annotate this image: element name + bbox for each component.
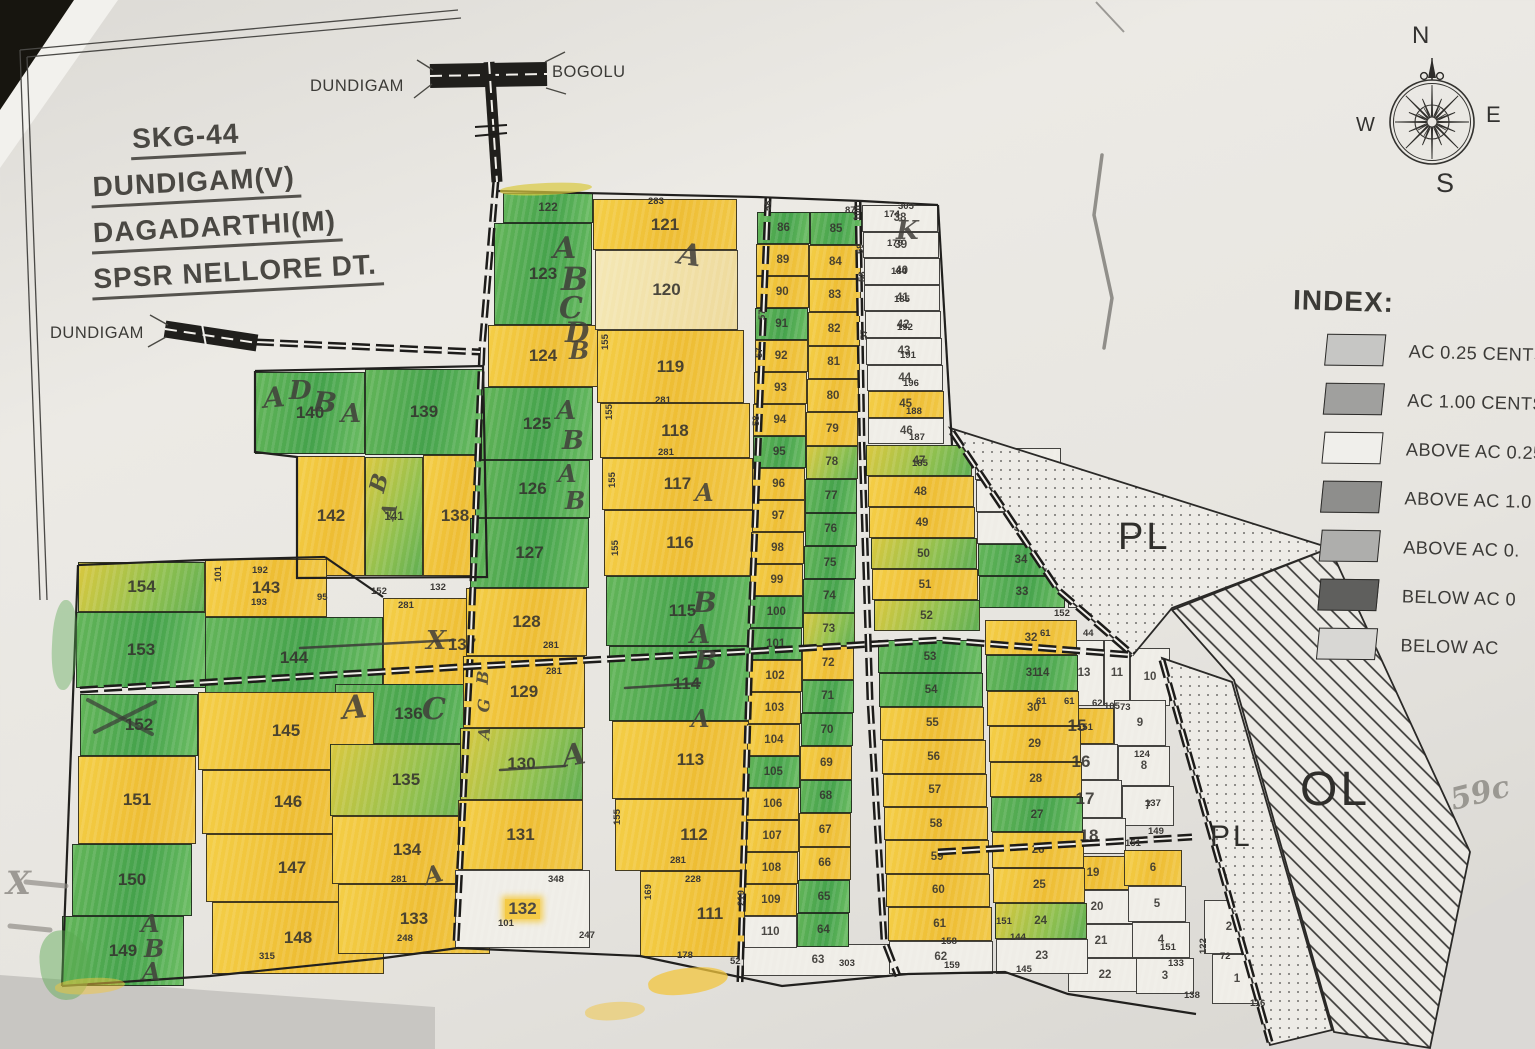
- parcel-42: 42: [865, 311, 941, 338]
- parcel-123: 123: [494, 223, 592, 325]
- parcel-number: 116: [666, 533, 693, 553]
- parcel-number: 92: [775, 350, 788, 362]
- parcel-number: 46: [900, 425, 913, 437]
- parcel-107: 107: [746, 820, 799, 852]
- parcel-number: 134: [393, 840, 421, 860]
- legend-label: AC 1.00 CENTS: [1407, 390, 1535, 415]
- parcel-number: 53: [924, 651, 937, 663]
- parcel-41: 41: [864, 285, 940, 312]
- parcel-number: 127: [515, 543, 543, 563]
- parcel-57: 57: [883, 774, 987, 807]
- parcel-number: 119: [657, 357, 684, 377]
- parcel-90: 90: [756, 276, 809, 308]
- parcel-number: 152: [125, 715, 153, 735]
- parcel-number: 137: [448, 635, 476, 655]
- parcel-number: 97: [772, 510, 785, 522]
- parcel-number: 32: [1025, 632, 1038, 644]
- parcel-3: 3: [1136, 958, 1194, 994]
- parcel-number: 59: [931, 851, 944, 863]
- parcel-number: 107: [763, 830, 782, 842]
- parcel-number: 48: [914, 486, 927, 498]
- parcel-number: 83: [828, 289, 841, 301]
- legend-item-3: ABOVE AC 1.0: [1281, 479, 1535, 523]
- legend-item-6: BELOW AC: [1277, 626, 1535, 670]
- parcel-45: 45: [868, 391, 944, 418]
- parcel-143: 143: [205, 559, 327, 617]
- parcel-71: 71: [802, 680, 854, 713]
- parcel-97: 97: [752, 500, 805, 532]
- parcel-number: 100: [767, 606, 786, 618]
- parcel-number: 50: [917, 548, 930, 560]
- parcel-number: 62: [934, 951, 947, 963]
- parcel-number: 147: [278, 858, 306, 878]
- parcel-101: 101: [749, 628, 802, 660]
- parcel-1: 1: [1212, 954, 1262, 1004]
- parcel-number: 61: [933, 918, 946, 930]
- parcel-52: 52: [874, 600, 980, 631]
- parcel-number: 71: [821, 690, 834, 702]
- parcel-number: 47: [913, 455, 926, 467]
- parcel-number: 11: [1111, 667, 1123, 679]
- parcel-116: 116: [604, 510, 756, 576]
- legend-swatch: [1323, 383, 1385, 416]
- parcel-number: 128: [512, 612, 540, 632]
- parcel-number: 103: [765, 702, 784, 714]
- parcel-153: 153: [76, 612, 206, 688]
- parcel-104: 104: [747, 724, 800, 756]
- parcel-number: 23: [1035, 950, 1048, 962]
- parcel-number: 139: [410, 402, 438, 422]
- parcel-65: 65: [798, 880, 850, 913]
- parcel-number: 12: [1091, 578, 1104, 590]
- parcel-23: 23: [996, 939, 1088, 974]
- parcel-105: 105: [747, 756, 800, 788]
- parcel-number: 79: [826, 423, 839, 435]
- parcel-55: 55: [880, 707, 984, 740]
- parcel-61: 61: [888, 907, 992, 940]
- parcel-number: 37: [1012, 458, 1025, 470]
- parcel-132: 132: [455, 870, 590, 948]
- parcel-4: 4: [1132, 922, 1190, 958]
- parcel-30: 30: [987, 691, 1079, 726]
- parcel-115: 115: [606, 576, 759, 646]
- parcel-number: 3: [1162, 970, 1168, 982]
- parcel-number: 146: [274, 792, 302, 812]
- parcel-25: 25: [993, 868, 1085, 903]
- parcel-number: 75: [824, 557, 837, 569]
- parcel-number: 131: [506, 825, 534, 845]
- parcel-number: 38: [894, 212, 907, 224]
- parcel-91: 91: [755, 308, 808, 340]
- parcel-34: 34: [978, 544, 1064, 576]
- parcel-number: 89: [776, 254, 789, 266]
- parcel-number: 150: [118, 870, 146, 890]
- parcel-number: 57: [928, 784, 941, 796]
- parcel-number: 117: [664, 474, 691, 494]
- parcel-77: 77: [805, 479, 857, 512]
- parcel-53: 53: [878, 640, 982, 673]
- parcel-number: 20: [1091, 901, 1104, 913]
- legend-label: AC 0.25 CENTS P: [1408, 341, 1535, 366]
- parcel-5: 5: [1128, 886, 1186, 922]
- parcel-number: 77: [825, 490, 838, 502]
- parcel-number: 142: [317, 506, 345, 526]
- parcel-number: 5: [1154, 898, 1160, 910]
- scanned-cadastral-map: { "title_block":{"lines":["SKG-44","DUND…: [0, 0, 1535, 1049]
- parcel-number: 51: [919, 579, 932, 591]
- parcel-number: 6: [1150, 862, 1156, 874]
- parcel-139: 139: [365, 369, 483, 455]
- parcel-number: 29: [1028, 738, 1041, 750]
- parcel-122: 122: [503, 193, 593, 223]
- parcel-118: 118: [600, 403, 750, 458]
- parcel-141: 141: [365, 457, 423, 576]
- parcel-75: 75: [804, 546, 856, 579]
- legend-item-5: BELOW AC 0: [1278, 577, 1535, 621]
- parcel-6: 6: [1124, 850, 1182, 886]
- parcel-85: 85: [810, 212, 862, 245]
- parcel-number: 18: [1080, 826, 1099, 846]
- legend-panel: INDEX: AC 0.25 CENTS PAC 1.00 CENTSABOVE…: [1277, 284, 1535, 687]
- parcel-126: 126: [475, 460, 590, 518]
- parcel-106: 106: [746, 788, 799, 820]
- parcel-32: 32: [985, 620, 1077, 655]
- parcel-number: 95: [773, 446, 786, 458]
- legend-swatch: [1320, 481, 1382, 514]
- parcel-number: 74: [823, 590, 836, 602]
- parcel-number: 86: [777, 222, 790, 234]
- parcel-number: 123: [529, 264, 557, 284]
- parcel-38: 38: [862, 205, 938, 232]
- parcel-number: 148: [284, 928, 312, 948]
- parcel-number: 58: [930, 818, 943, 830]
- parcel-108: 108: [745, 852, 798, 884]
- parcel-80: 80: [807, 379, 859, 412]
- parcel-39: 39: [863, 232, 939, 259]
- parcel-number: 135: [392, 770, 420, 790]
- parcel-96: 96: [752, 468, 805, 500]
- parcel-48: 48: [868, 476, 974, 507]
- parcel-number: 94: [773, 414, 786, 426]
- parcel-58: 58: [884, 807, 988, 840]
- parcel-110: 110: [744, 916, 797, 948]
- parcel-number: 82: [828, 323, 841, 335]
- legend-item-4: ABOVE AC 0.: [1280, 528, 1535, 572]
- parcel-26: 26: [992, 832, 1084, 867]
- parcel-number: 145: [272, 721, 300, 741]
- parcel-63: 63: [743, 944, 893, 976]
- parcel-number: 22: [1099, 969, 1112, 981]
- parcel-number: 26: [1032, 844, 1045, 856]
- parcel-128: 128: [466, 588, 587, 656]
- parcel-49: 49: [869, 507, 975, 538]
- parcel-number: 24: [1034, 915, 1047, 927]
- parcel-number: 149: [109, 941, 137, 961]
- parcel-number: 151: [123, 790, 151, 810]
- parcel-109: 109: [744, 884, 797, 916]
- legend-item-1: AC 1.00 CENTS: [1284, 381, 1535, 425]
- parcel-99: 99: [750, 564, 803, 596]
- parcel-12: 12: [1068, 560, 1126, 608]
- parcel-number: 13: [1078, 667, 1091, 679]
- parcel-number: 141: [384, 511, 403, 523]
- parcel-number: 108: [762, 862, 781, 874]
- parcel-number: 153: [127, 640, 155, 660]
- legend-label: ABOVE AC 0.: [1403, 537, 1520, 561]
- parcel-76: 76: [805, 513, 857, 546]
- parcel-number: 105: [764, 766, 783, 778]
- parcel-number: 69: [820, 757, 833, 769]
- parcel-117: 117: [602, 458, 753, 510]
- parcel-50: 50: [871, 538, 977, 569]
- parcel-number: 110: [761, 926, 780, 938]
- parcel-102: 102: [749, 660, 802, 692]
- parcel-47: 47: [866, 445, 972, 476]
- parcel-89: 89: [756, 244, 809, 276]
- parcel-35: 35: [977, 512, 1063, 544]
- parcel-46: 46: [868, 418, 944, 445]
- parcel-number: 36: [1013, 490, 1026, 502]
- parcel-24: 24: [995, 903, 1087, 938]
- parcel-73: 73: [803, 613, 855, 646]
- parcel-37: 37: [975, 448, 1061, 480]
- parcel-number: 125: [523, 414, 551, 434]
- legend-swatch: [1317, 579, 1379, 612]
- parcel-59: 59: [885, 840, 989, 873]
- parcel-66: 66: [799, 847, 851, 880]
- legend-label: BELOW AC: [1400, 635, 1499, 659]
- legend-label: BELOW AC 0: [1402, 586, 1517, 610]
- parcel-number: 118: [661, 421, 688, 441]
- parcel-number: 73: [822, 623, 835, 635]
- parcel-number: 113: [677, 750, 704, 770]
- parcel-142: 142: [297, 456, 365, 576]
- parcel-number: 124: [529, 346, 557, 366]
- parcel-number: 9: [1137, 717, 1143, 729]
- parcel-124: 124: [488, 325, 598, 387]
- parcel-number: 45: [899, 398, 912, 410]
- parcel-81: 81: [808, 346, 860, 379]
- parcel-number: 138: [441, 506, 469, 526]
- parcel-number: 85: [830, 223, 843, 235]
- parcel-94: 94: [753, 404, 806, 436]
- parcel-number: 34: [1015, 554, 1028, 566]
- parcel-number: 28: [1029, 773, 1042, 785]
- parcel-number: 114: [673, 674, 700, 694]
- parcel-number: 98: [771, 542, 784, 554]
- parcel-number: 109: [761, 894, 780, 906]
- parcel-number: 42: [897, 319, 910, 331]
- parcel-27: 27: [991, 797, 1083, 832]
- parcel-number: 10: [1144, 671, 1157, 683]
- parcel-95: 95: [753, 436, 806, 468]
- parcel-79: 79: [806, 412, 858, 445]
- parcel-number: 7: [1145, 800, 1151, 812]
- parcel-28: 28: [990, 762, 1082, 797]
- legend-swatch: [1319, 530, 1381, 563]
- parcel-33: 33: [979, 576, 1065, 608]
- parcel-140: 140: [255, 372, 365, 454]
- parcel-number: 101: [766, 638, 785, 650]
- parcel-36: 36: [976, 480, 1062, 512]
- parcel-number: 54: [925, 684, 938, 696]
- parcel-number: 144: [280, 648, 308, 668]
- parcel-number: 129: [510, 682, 538, 702]
- parcel-number: 44: [898, 372, 911, 384]
- parcel-10: 10: [1130, 648, 1170, 706]
- parcel-number: 78: [825, 456, 838, 468]
- parcel-98: 98: [751, 532, 804, 564]
- parcel-64: 64: [797, 913, 849, 946]
- legend-item-0: AC 0.25 CENTS P: [1285, 332, 1535, 376]
- parcel-number: 17: [1076, 789, 1095, 809]
- parcel-number: 76: [824, 523, 837, 535]
- legend-items: AC 0.25 CENTS PAC 1.00 CENTSABOVE AC 0.2…: [1277, 332, 1535, 670]
- parcel-number: 126: [518, 479, 546, 499]
- parcel-number: 63: [812, 954, 825, 966]
- parcel-129: 129: [463, 656, 585, 728]
- parcel-72: 72: [802, 646, 854, 679]
- legend-swatch: [1321, 432, 1383, 465]
- parcel-number: 27: [1031, 809, 1044, 821]
- parcel-number: 136: [394, 704, 422, 724]
- parcel-130: 130: [460, 728, 583, 800]
- parcel-69: 69: [800, 746, 852, 779]
- parcel-7: 7: [1122, 786, 1174, 826]
- parcel-number: 39: [894, 239, 907, 251]
- parcel-8: 8: [1118, 746, 1170, 786]
- parcel-number: 15: [1068, 716, 1087, 736]
- parcel-51: 51: [872, 569, 978, 600]
- parcel-number: 33: [1016, 586, 1029, 598]
- parcel-150: 150: [72, 844, 192, 916]
- parcel-number: 25: [1033, 879, 1046, 891]
- parcel-78: 78: [806, 446, 858, 479]
- parcel-number: 64: [817, 924, 830, 936]
- parcel-68: 68: [800, 780, 852, 813]
- parcel-number: 106: [763, 798, 782, 810]
- legend-item-2: ABOVE AC 0.25: [1283, 430, 1535, 474]
- parcel-number: 122: [538, 202, 557, 214]
- parcel-number: 154: [127, 577, 155, 597]
- parcel-number: 65: [818, 891, 831, 903]
- parcel-number: 56: [927, 751, 940, 763]
- parcel-number: 112: [680, 825, 707, 845]
- parcel-83: 83: [809, 279, 861, 312]
- parcel-131: 131: [458, 800, 583, 870]
- parcel-151: 151: [78, 756, 196, 844]
- parcel-70: 70: [801, 713, 853, 746]
- parcel-number: 55: [926, 717, 939, 729]
- parcel-40: 40: [864, 258, 940, 285]
- parcel-number: 21: [1095, 935, 1108, 947]
- parcel-92: 92: [755, 340, 808, 372]
- parcel-125: 125: [481, 387, 593, 460]
- parcel-number: 49: [916, 517, 929, 529]
- parcel-number: 115: [669, 601, 696, 621]
- parcel-number: 16: [1072, 752, 1091, 772]
- parcel-number: 81: [827, 356, 840, 368]
- parcel-74: 74: [803, 579, 855, 612]
- parcel-number: 132: [505, 899, 539, 919]
- parcel-86: 86: [757, 212, 810, 244]
- parcel-number: 102: [766, 670, 785, 682]
- parcel-number: 67: [819, 824, 832, 836]
- parcel-120: 120: [595, 250, 738, 330]
- parcel-103: 103: [748, 692, 801, 724]
- parcel-149: 149: [62, 916, 184, 986]
- parcel-number: 111: [697, 904, 724, 924]
- parcel-82: 82: [808, 312, 860, 345]
- parcel-number: 41: [896, 292, 909, 304]
- legend-title: INDEX:: [1293, 284, 1535, 328]
- parcel-44: 44: [867, 365, 943, 392]
- parcel-31: 31: [986, 655, 1078, 690]
- parcel-number: 4: [1158, 934, 1164, 946]
- parcel-number: 35: [1014, 522, 1027, 534]
- parcel-number: 8: [1141, 760, 1147, 772]
- parcel-number: 1: [1234, 973, 1240, 985]
- parcel-62: 62: [889, 941, 993, 974]
- parcel-number: 52: [920, 610, 933, 622]
- parcel-number: 140: [296, 403, 324, 423]
- parcel-119: 119: [597, 330, 744, 403]
- parcel-9: 9: [1114, 700, 1166, 746]
- parcel-number: 60: [932, 884, 945, 896]
- parcel-number: 93: [774, 382, 787, 394]
- parcel-127: 127: [470, 518, 589, 588]
- parcel-2: 2: [1204, 900, 1254, 954]
- parcel-11: 11: [1104, 640, 1130, 706]
- parcel-93: 93: [754, 372, 807, 404]
- parcel-number: 104: [764, 734, 783, 746]
- parcel-number: 30: [1027, 702, 1040, 714]
- parcel-56: 56: [882, 740, 986, 773]
- parcel-number: 2: [1226, 921, 1232, 933]
- parcel-number: 43: [898, 345, 911, 357]
- parcel-60: 60: [886, 874, 990, 907]
- parcel-100: 100: [750, 596, 803, 628]
- parcel-number: 72: [822, 657, 835, 669]
- parcel-number: 133: [400, 909, 428, 929]
- parcel-152: 152: [80, 694, 198, 756]
- parcel-number: 66: [818, 857, 831, 869]
- parcel-43: 43: [866, 338, 942, 365]
- parcel-number: 143: [252, 578, 280, 598]
- legend-label: ABOVE AC 1.0: [1404, 488, 1532, 513]
- parcel-number: 91: [775, 318, 788, 330]
- parcel-84: 84: [809, 245, 861, 278]
- parcel-67: 67: [799, 813, 851, 846]
- parcel-number: 68: [819, 790, 832, 802]
- parcel-number: 19: [1087, 867, 1100, 879]
- parcel-number: 130: [507, 754, 535, 774]
- parcel-number: 90: [776, 286, 789, 298]
- legend-label: ABOVE AC 0.25: [1406, 439, 1535, 464]
- legend-swatch: [1324, 334, 1386, 367]
- parcel-number: 96: [772, 478, 785, 490]
- parcel-114: 114: [609, 646, 764, 721]
- parcel-number: 121: [651, 215, 679, 235]
- parcel-number: 70: [821, 724, 834, 736]
- parcel-54: 54: [879, 673, 983, 706]
- parcel-number: 120: [652, 280, 680, 300]
- parcel-121: 121: [593, 199, 737, 250]
- parcel-number: 31: [1026, 667, 1039, 679]
- parcel-number: 84: [829, 256, 842, 268]
- parcel-154: 154: [78, 562, 205, 612]
- parcel-number: 40: [895, 265, 908, 277]
